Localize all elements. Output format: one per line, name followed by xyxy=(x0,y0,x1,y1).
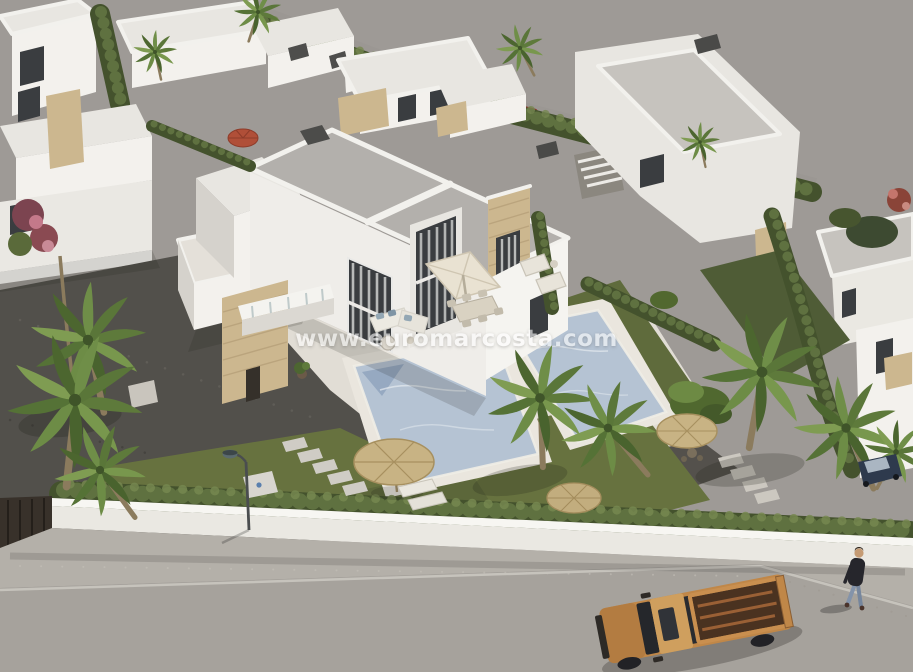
entry-door xyxy=(246,366,260,402)
stone-panel xyxy=(884,352,912,390)
window xyxy=(640,154,664,188)
coffee-table xyxy=(381,336,395,350)
window xyxy=(20,46,44,86)
flowering-bush xyxy=(887,188,911,212)
straw-umbrella-lower xyxy=(547,483,601,513)
pouf xyxy=(406,336,414,344)
scene xyxy=(0,0,913,672)
garden-table xyxy=(687,448,697,458)
side-table xyxy=(550,260,558,268)
drain xyxy=(256,482,261,487)
red-umbrella xyxy=(228,129,258,147)
head xyxy=(854,548,863,557)
window xyxy=(398,94,416,122)
stone-panel xyxy=(46,89,84,169)
render-canvas: www.euromarcosta.com xyxy=(0,0,913,672)
window xyxy=(842,288,856,318)
window xyxy=(18,86,40,122)
